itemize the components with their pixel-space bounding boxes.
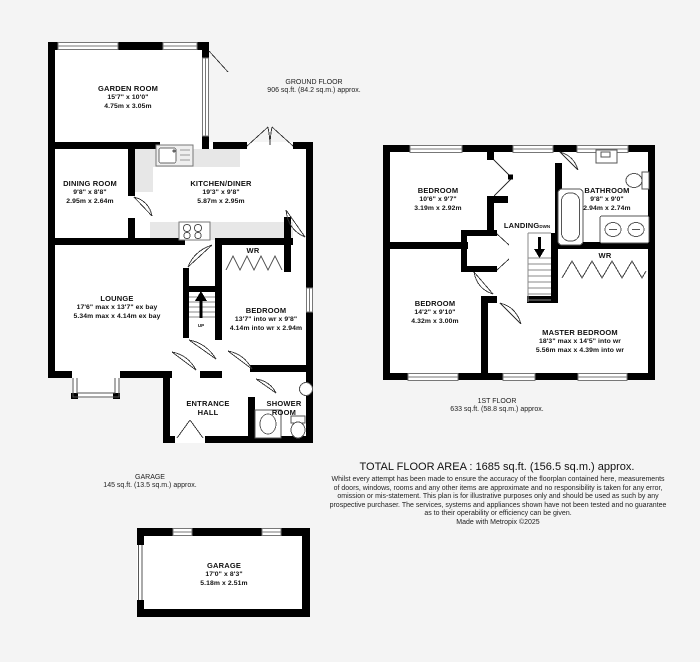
room-label-wr-first: WR [599,251,612,260]
room-dim-metric: 4.75m x 3.05m [98,102,158,111]
room-dim-imperial: 9'8" x 8'8" [63,188,117,197]
room-label-entrance-hall: ENTRANCE HALL [186,399,229,417]
room-dim-metric: 2.94m x 2.74m [583,204,630,213]
room-name-line1: ENTRANCE [186,399,229,408]
room-label-dining-room: DINING ROOM 9'8" x 8'8" 2.95m x 2.64m [63,179,117,206]
ground-floor-plan [48,42,313,443]
stairs-down-label: DWN [539,224,550,229]
room-label-bedroom2: BEDROOM 14'2" x 9'10" 4.32m x 3.00m [411,299,458,326]
room-label-shower-room: SHOWER ROOM [267,399,302,417]
room-name: LANDING [504,221,540,230]
room-name-line2: HALL [186,408,229,417]
toilet-icon [291,416,305,438]
garage-floor-label: GARAGE 145 sq.ft. (13.5 sq.m.) approx. [103,474,196,490]
room-dim-metric: 5.34m max x 4.14m ex bay [73,312,160,321]
floor-area: 906 sq.ft. (84.2 sq.m.) approx. [267,87,360,95]
room-name-line1: SHOWER [267,399,302,408]
bathtub-icon [558,189,583,245]
room-label-wr-ground: WR [247,246,260,255]
room-dim-metric: 4.32m x 3.00m [411,317,458,326]
room-dim-metric: 5.87m x 2.95m [190,197,251,206]
floorplan-page: GARDEN ROOM 15'7" x 10'0" 4.75m x 3.05m … [0,0,700,662]
credit-line: Made with Metropix ©2025 [330,519,667,528]
disclaimer: Whilst every attempt has been made to en… [330,476,667,528]
floor-title: GARAGE [103,474,196,482]
room-dim-metric: 5.56m max x 4.39m into wr [536,346,624,355]
floor-area: 145 sq.ft. (13.5 sq.m.) approx. [103,482,196,490]
floor-title: 1ST FLOOR [450,398,543,406]
room-name: BEDROOM [411,299,458,308]
room-name: GARDEN ROOM [98,84,158,93]
room-label-bathroom: BATHROOM 9'8" x 9'0" 2.94m x 2.74m [583,186,630,213]
room-label-lounge: LOUNGE 17'6" max x 13'7" ex bay 5.34m ma… [73,294,160,321]
hob-icon [179,222,210,240]
disclaimer-line: as to their operability or efficiency ca… [330,510,667,519]
room-label-kitchen-diner: KITCHEN/DINER 19'3" x 9'8" 5.87m x 2.95m [190,179,251,206]
room-dim-imperial: 17'6" max x 13'7" ex bay [73,303,160,312]
disclaimer-line: of doors, windows, rooms and any other i… [330,485,667,494]
room-name: KITCHEN/DINER [190,179,251,188]
total-floor-area: TOTAL FLOOR AREA : 1685 sq.ft. (156.5 sq… [360,461,635,473]
basin-icon [300,383,313,396]
room-dim-imperial: 14'2" x 9'10" [411,308,458,317]
room-dim-imperial: 13'7" into wr x 9'8" [230,315,302,324]
room-name: DINING ROOM [63,179,117,188]
room-name: LOUNGE [73,294,160,303]
room-dim-metric: 4.14m into wr x 2.94m [230,324,302,333]
room-dim-metric: 3.19m x 2.92m [414,204,461,213]
room-label-bedroom-ground: BEDROOM 13'7" into wr x 9'8" 4.14m into … [230,306,302,333]
room-name: GARAGE [200,561,247,570]
first-floor-label: 1ST FLOOR 633 sq.ft. (58.8 sq.m.) approx… [450,398,543,414]
room-dim-imperial: 10'6" x 9'7" [414,195,461,204]
double-sink-icon [600,216,649,243]
room-name: BATHROOM [583,186,630,195]
room-name: BEDROOM [230,306,302,315]
room-dim-imperial: 19'3" x 9'8" [190,188,251,197]
stairs-up-label: UP [198,321,204,330]
disclaimer-line: prospective purchaser. The services, sys… [330,502,667,511]
disclaimer-line: Whilst every attempt has been made to en… [330,476,667,485]
room-dim-metric: 2.95m x 2.64m [63,197,117,206]
floor-area: 633 sq.ft. (58.8 sq.m.) approx. [450,406,543,414]
sink-icon [156,145,193,166]
ground-floor-label: GROUND FLOOR 906 sq.ft. (84.2 sq.m.) app… [267,79,360,95]
room-dim-imperial: 15'7" x 10'0" [98,93,158,102]
room-dim-imperial: 17'0" x 8'3" [200,570,247,579]
room-label-landing: LANDINGDWN [504,219,550,231]
room-label-bedroom1: BEDROOM 10'6" x 9'7" 3.19m x 2.92m [414,186,461,213]
room-dim-metric: 5.18m x 2.51m [200,579,247,588]
room-dim-imperial: 18'3" max x 14'5" into wr [536,337,624,346]
room-name-line2: ROOM [267,408,302,417]
room-label-garage: GARAGE 17'0" x 8'3" 5.18m x 2.51m [200,561,247,588]
room-label-garden-room: GARDEN ROOM 15'7" x 10'0" 4.75m x 3.05m [98,84,158,111]
shelf-icon [596,150,617,163]
disclaimer-line: omission or mis-statement. This plan is … [330,493,667,502]
floor-title: GROUND FLOOR [267,79,360,87]
room-dim-imperial: 9'8" x 9'0" [583,195,630,204]
room-name: MASTER BEDROOM [536,328,624,337]
room-name: BEDROOM [414,186,461,195]
room-label-master-bedroom: MASTER BEDROOM 18'3" max x 14'5" into wr… [536,328,624,355]
